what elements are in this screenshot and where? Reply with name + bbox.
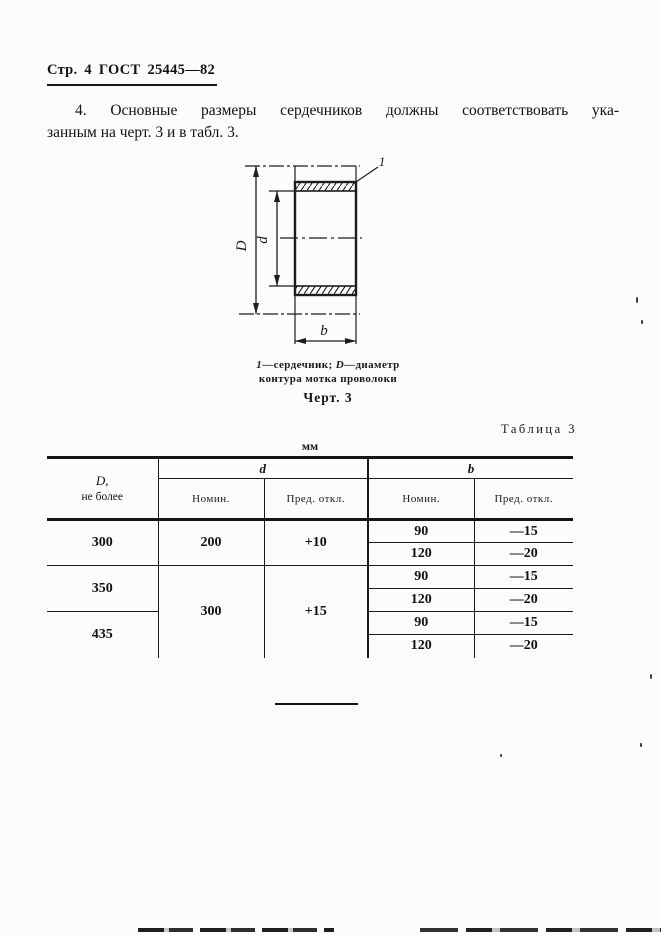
header-D-note: не более <box>81 491 123 503</box>
cell-b-deviation: —20 <box>474 635 573 658</box>
arrowhead <box>253 303 259 314</box>
core-drawing: D d b 1 <box>232 150 412 357</box>
table-row: 300 200 +10 90 —15 <box>47 520 573 543</box>
header-group-d: d <box>158 458 368 479</box>
cell-b-deviation: —15 <box>474 612 573 635</box>
cell-b-nominal: 120 <box>368 543 474 566</box>
caption-part-text: —сердечник; <box>262 359 335 371</box>
scan-speck <box>641 320 643 324</box>
cell-D: 300 <box>47 520 158 566</box>
cell-b-deviation: —15 <box>474 566 573 589</box>
table-label: Таблица 3 <box>430 422 577 437</box>
page-edge-artifact <box>138 928 334 932</box>
caption-dim-ref: D <box>336 359 344 371</box>
figure-title: Черт. 3 <box>226 390 430 406</box>
scan-speck <box>636 297 638 303</box>
part-ref-label: 1 <box>379 154 386 169</box>
arrowhead <box>274 275 280 286</box>
arrowhead <box>345 338 356 344</box>
cell-D: 435 <box>47 612 158 658</box>
cell-d-nominal: 300 <box>158 566 264 658</box>
header-d-deviation: Пред. откл. <box>264 479 368 520</box>
table-row: 350 300 +15 90 —15 <box>47 566 573 589</box>
caption-dim-text: —диаметр <box>344 359 400 371</box>
arrowhead <box>253 166 259 177</box>
running-head: Стр. 4 ГОСТ 25445—82 <box>47 62 217 86</box>
cell-b-deviation: —20 <box>474 589 573 612</box>
cell-d-nominal: 200 <box>158 520 264 566</box>
cell-b-deviation: —15 <box>474 520 573 543</box>
leader-line <box>353 167 378 184</box>
document-page: Стр. 4 ГОСТ 25445—82 4. Основные размеры… <box>0 0 661 935</box>
dim-label-D: D <box>234 240 250 252</box>
cell-b-nominal: 90 <box>368 566 474 589</box>
paragraph-line-1: 4. Основные размеры сердечников должны с… <box>47 100 619 122</box>
scan-speck <box>650 674 652 679</box>
section-end-rule <box>275 703 358 705</box>
cell-d-deviation: +10 <box>264 520 368 566</box>
arrowhead <box>295 338 306 344</box>
body-paragraph: 4. Основные размеры сердечников должны с… <box>47 100 619 144</box>
header-b-nominal: Номин. <box>368 479 474 520</box>
scan-speck <box>640 743 642 747</box>
cell-b-nominal: 120 <box>368 635 474 658</box>
page-edge-artifact <box>420 928 661 932</box>
dimensions-table: D, не более d b Номин. Пред. откл. Номин… <box>47 456 573 658</box>
scan-speck <box>500 754 502 757</box>
core-bottom-hatch <box>295 286 356 295</box>
arrowhead <box>274 191 280 202</box>
figure-caption: 1—сердечник; D—диаметр контура мотка про… <box>226 358 430 386</box>
dim-label-d: d <box>255 236 271 244</box>
caption-line-2: контура мотка проволоки <box>259 373 397 385</box>
header-b-deviation: Пред. откл. <box>474 479 573 520</box>
cell-d-deviation: +15 <box>264 566 368 658</box>
header-D-symbol: D, <box>96 473 109 488</box>
table-units: мм <box>47 439 573 454</box>
cell-b-nominal: 120 <box>368 589 474 612</box>
header-d-nominal: Номин. <box>158 479 264 520</box>
cell-b-nominal: 90 <box>368 612 474 635</box>
header-D: D, не более <box>47 458 158 520</box>
cell-b-deviation: —20 <box>474 543 573 566</box>
paragraph-line-2: занным на черт. 3 и в табл. 3. <box>47 122 619 144</box>
dim-label-b: b <box>320 323 328 339</box>
cell-b-nominal: 90 <box>368 520 474 543</box>
core-top-hatch <box>295 182 356 191</box>
header-group-b: b <box>368 458 573 479</box>
cell-D: 350 <box>47 566 158 612</box>
